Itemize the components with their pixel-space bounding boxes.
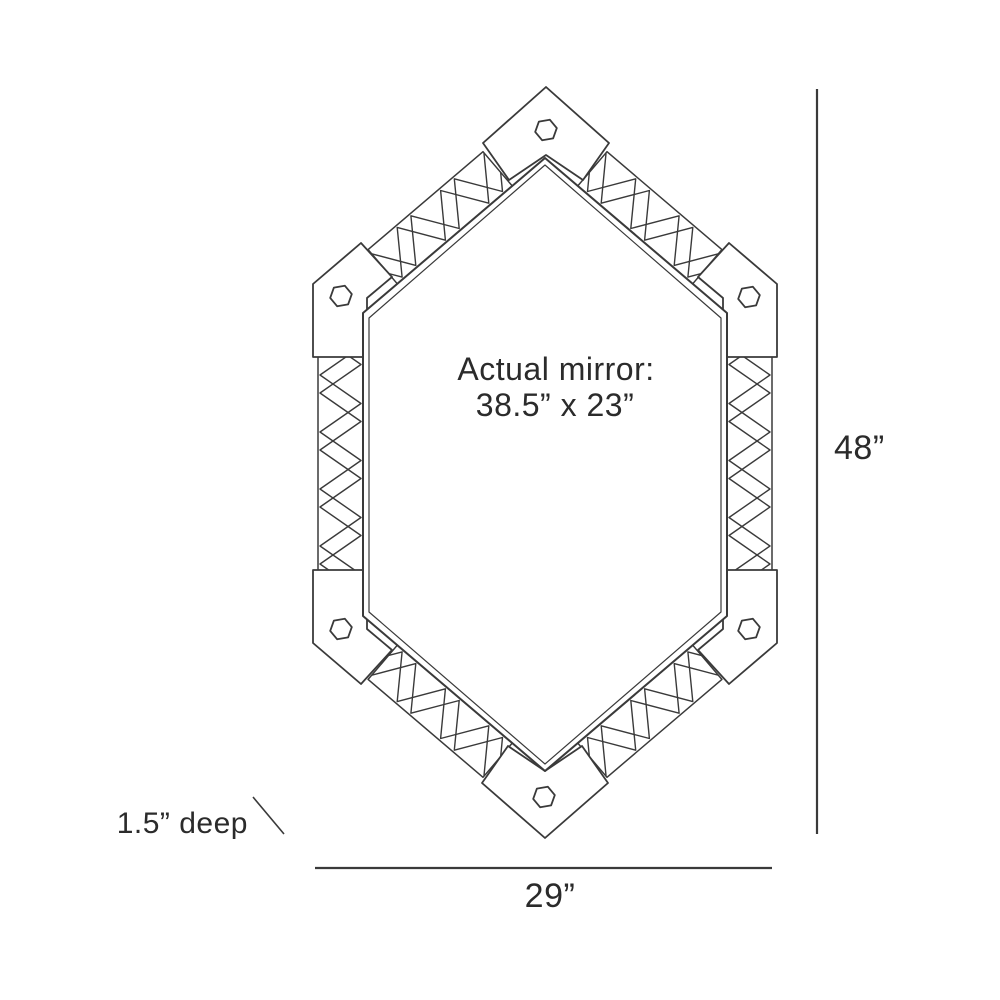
mirror-size-label-line2: 38.5” x 23” bbox=[476, 387, 634, 423]
height-dimension-label: 48” bbox=[834, 429, 885, 467]
zigzag-band bbox=[727, 318, 772, 593]
mirror-size-label-line1: Actual mirror: bbox=[457, 351, 654, 387]
width-dimension-label: 29” bbox=[525, 877, 576, 915]
mirror-dimension-diagram: Actual mirror: 38.5” x 23” 48” 29” 1.5” … bbox=[0, 0, 1000, 1000]
depth-leader-line bbox=[253, 797, 284, 834]
diagram-svg: Actual mirror: 38.5” x 23” 48” 29” 1.5” … bbox=[0, 0, 1000, 1000]
zigzag-band bbox=[318, 318, 363, 593]
depth-label: 1.5” deep bbox=[117, 807, 248, 840]
